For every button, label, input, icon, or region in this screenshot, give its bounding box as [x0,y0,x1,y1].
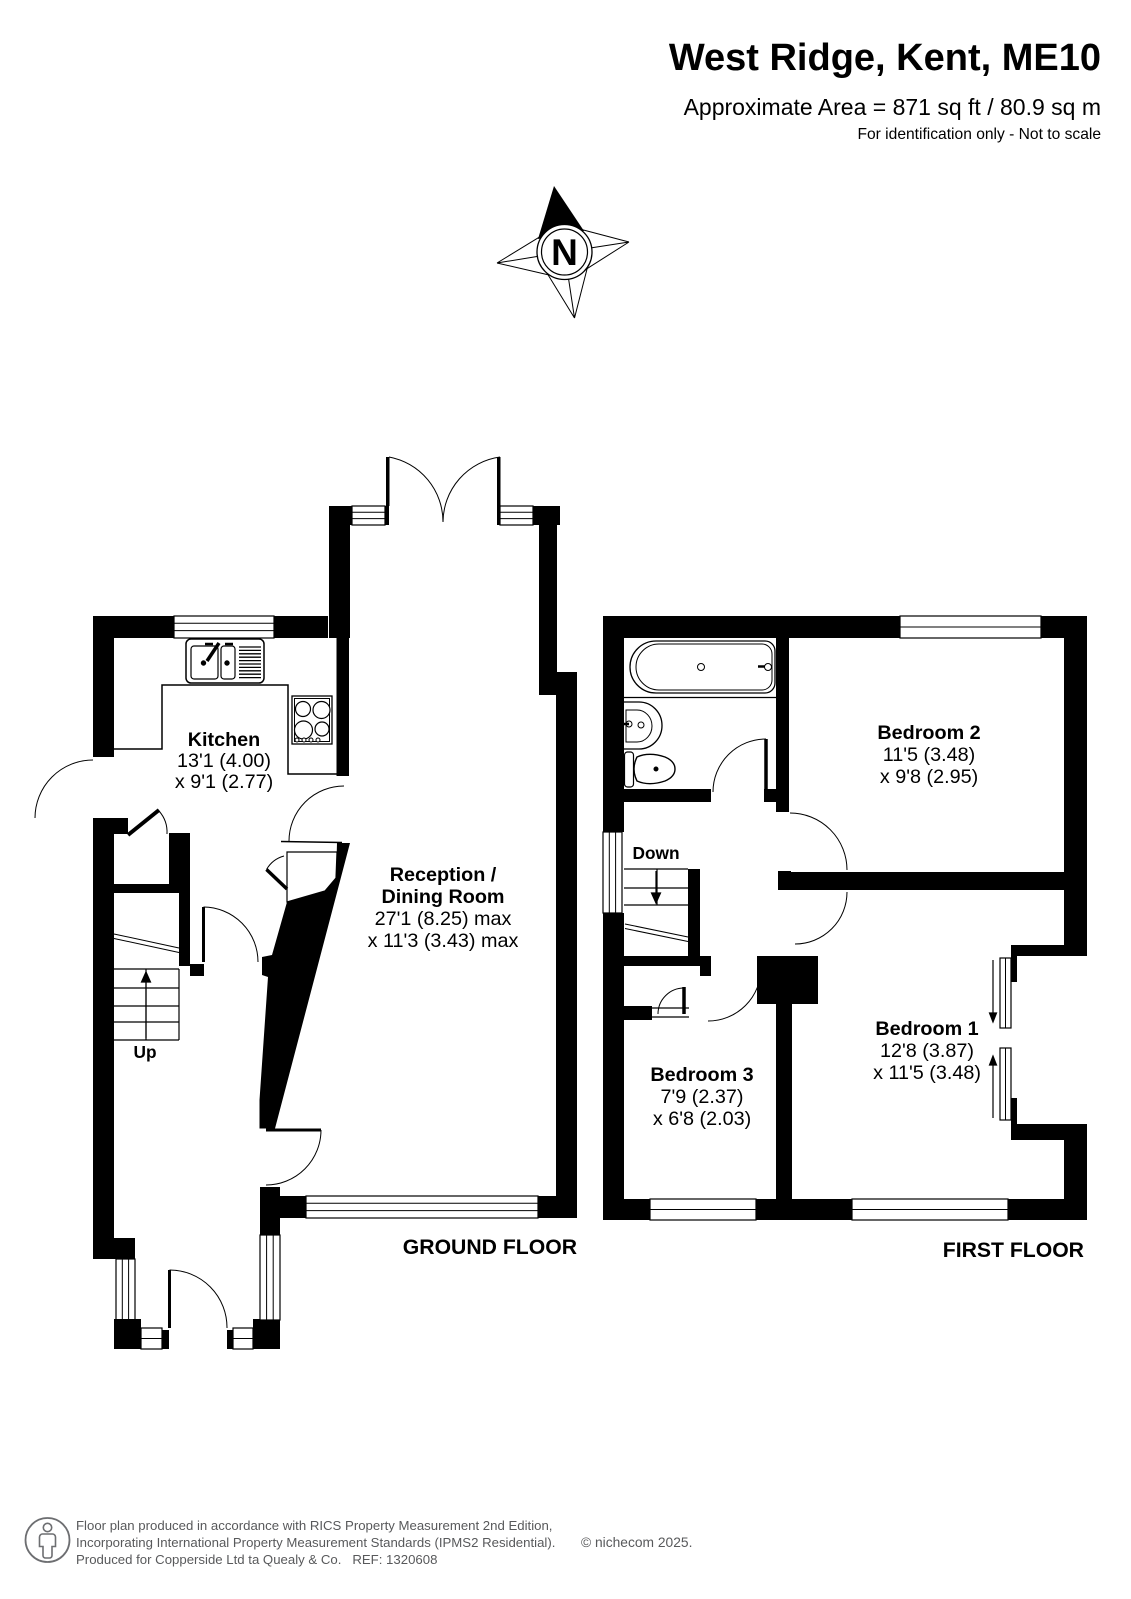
svg-text:12'8 (3.87): 12'8 (3.87) [880,1040,974,1062]
svg-text:Incorporating International Pr: Incorporating International Property Mea… [76,1535,555,1550]
svg-text:11'5 (3.48): 11'5 (3.48) [883,744,975,766]
svg-text:FIRST FLOOR: FIRST FLOOR [943,1239,1084,1262]
svg-text:Bedroom 2: Bedroom 2 [877,722,980,744]
svg-text:Bedroom 1: Bedroom 1 [875,1018,978,1040]
svg-text:Approximate Area = 871 sq ft /: Approximate Area = 871 sq ft / 80.9 sq m [684,94,1101,120]
svg-text:Floor plan produced in accorda: Floor plan produced in accordance with R… [76,1518,552,1533]
svg-text:For identification only - Not: For identification only - Not to scale [857,126,1101,143]
svg-text:13'1 (4.00): 13'1 (4.00) [177,750,271,772]
svg-text:West Ridge, Kent, ME10: West Ridge, Kent, ME10 [669,37,1101,79]
svg-text:Down: Down [632,843,679,863]
svg-text:27'1 (8.25) max: 27'1 (8.25) max [375,908,512,930]
svg-text:Bedroom 3: Bedroom 3 [650,1064,753,1086]
svg-text:Reception /: Reception / [390,864,497,886]
svg-text:x 11'3 (3.43) max: x 11'3 (3.43) max [368,930,519,952]
svg-text:Up: Up [133,1042,156,1062]
svg-text:Kitchen: Kitchen [188,729,261,751]
svg-text:x 11'5 (3.48): x 11'5 (3.48) [873,1062,981,1084]
svg-text:© nichecom 2025.: © nichecom 2025. [581,1535,692,1550]
svg-text:7'9 (2.37): 7'9 (2.37) [661,1086,744,1108]
svg-text:x 9'1 (2.77): x 9'1 (2.77) [175,771,273,793]
svg-text:Dining Room: Dining Room [381,886,504,908]
svg-text:GROUND FLOOR: GROUND FLOOR [403,1236,577,1259]
svg-text:x 6'8 (2.03): x 6'8 (2.03) [653,1108,751,1130]
svg-text:Produced for Copperside Ltd ta: Produced for Copperside Ltd ta Quealy & … [76,1552,437,1567]
svg-text:N: N [551,232,578,273]
svg-text:x 9'8 (2.95): x 9'8 (2.95) [880,766,978,788]
